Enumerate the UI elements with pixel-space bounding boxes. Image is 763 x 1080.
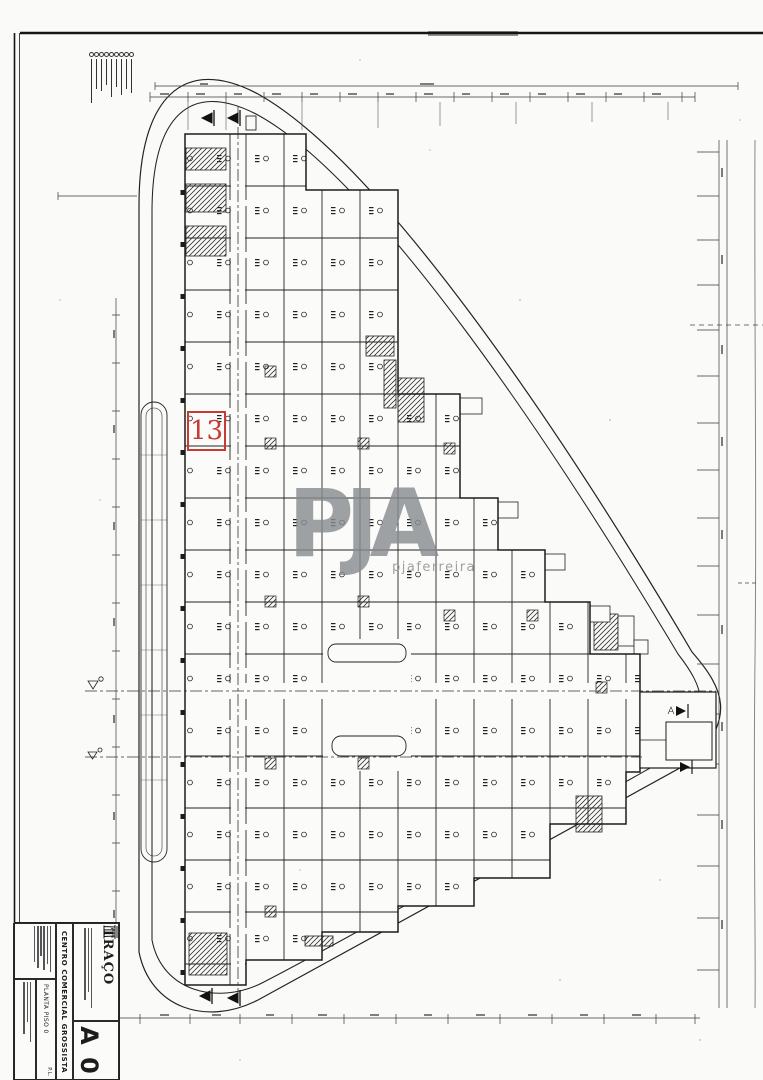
legend-item — [109, 52, 114, 114]
plaza-kiosk — [328, 644, 406, 662]
legend-bullet-icon — [129, 52, 134, 57]
left-walkway-island — [141, 402, 167, 862]
legend-item — [129, 52, 134, 114]
discipline-label: P.L. — [46, 1067, 52, 1077]
plan-drawing — [0, 0, 763, 1080]
column-capital-icon — [103, 924, 118, 940]
title-block: TRAÇO A 0 CENTRO COMERCIAL GROSSISTA PLA… — [14, 922, 120, 1080]
legend-item — [99, 52, 104, 114]
legend-item — [104, 52, 109, 114]
legend-item — [119, 52, 124, 114]
level-markers — [88, 677, 103, 759]
firm-logo: TRAÇO — [73, 923, 119, 1021]
building-footprint — [183, 134, 666, 985]
project-title: CENTRO COMERCIAL GROSSISTA — [56, 923, 73, 1080]
scanned-floor-plan-sheet: 13 PJA pjaferreira TRAÇO A 0 CENTRO COME… — [0, 0, 763, 1080]
revision-fields — [13, 923, 56, 979]
legend-bullet-icon — [109, 52, 114, 57]
legend-item — [94, 52, 99, 114]
firm-address — [83, 928, 94, 1016]
legend-bullet-icon — [104, 52, 109, 57]
sheet-code: A 0 — [73, 1021, 119, 1080]
legend-bullet-icon — [114, 52, 119, 57]
drawing-title-cell: PLANTA PISO 0 P.L. — [36, 979, 56, 1080]
legend-item — [124, 52, 129, 114]
drawing-title: PLANTA PISO 0 — [43, 984, 50, 1034]
plaza-kiosk — [332, 736, 406, 756]
legend-bullet-icon — [119, 52, 124, 57]
legend-bullet-icon — [124, 52, 129, 57]
legend-bullet-icon — [94, 52, 99, 57]
legend-item — [89, 52, 94, 114]
highlighted-unit-label: 13 — [190, 418, 223, 444]
legend — [86, 52, 134, 114]
east-entrance-complex — [640, 692, 716, 774]
legend-bullet-icon — [89, 52, 94, 57]
scale-date-fields — [13, 979, 36, 1080]
legend-bullet-icon — [99, 52, 104, 57]
highlighted-unit-13: 13 — [187, 411, 226, 451]
legend-item — [114, 52, 119, 114]
